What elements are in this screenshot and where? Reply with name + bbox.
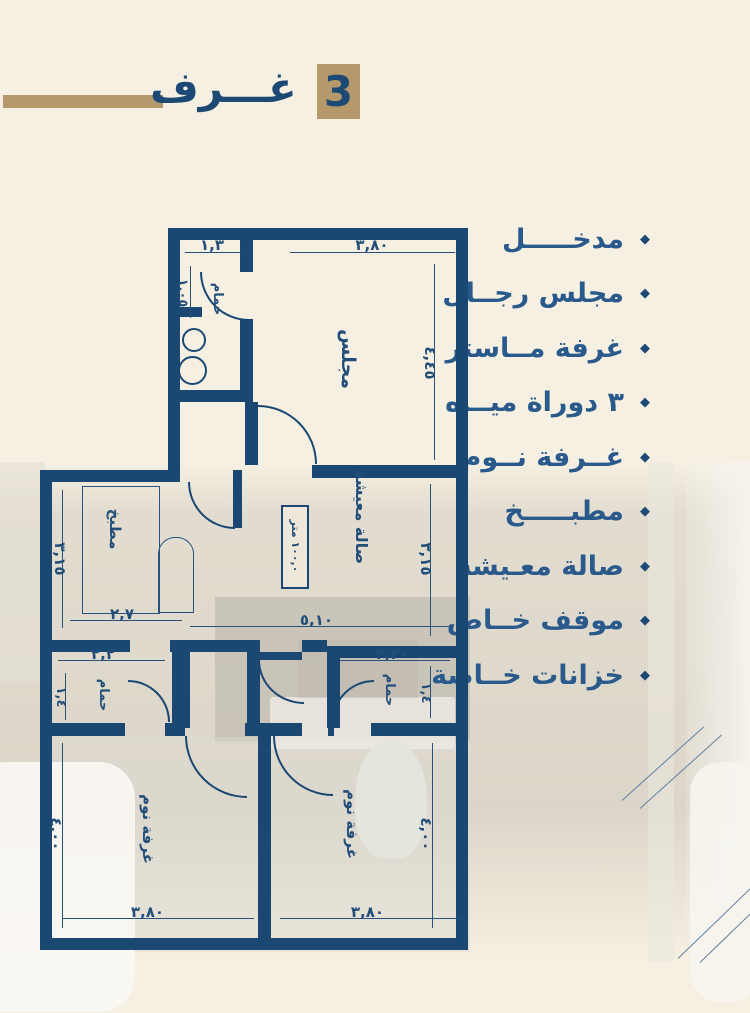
header-underline-bar: [3, 95, 163, 108]
dimension-label: ١,٠٥: [172, 266, 190, 320]
kitchen-arch: [158, 537, 194, 613]
photo-curtain-fold: [648, 462, 674, 962]
room-label-kitchen: مطبخ: [106, 489, 124, 569]
rooms-count-badge: 3: [317, 64, 360, 119]
dimension-label: ٢,٢: [78, 645, 128, 663]
room-label-bath-right: حمام: [379, 665, 397, 715]
wall-segment: [168, 390, 253, 402]
door-leaf: [260, 652, 302, 660]
dimension-label: ٣,١٥: [417, 532, 435, 586]
dimension-label: ٤,٠٠: [417, 807, 435, 861]
feature-label: غــرفة نــوم: [462, 442, 624, 473]
feature-label: مطبـــــخ: [504, 496, 624, 527]
feature-label: صالة معـيشة: [456, 551, 624, 582]
dimension-label: ٤,٤٥: [421, 336, 439, 390]
diagonal-line-decoration: [622, 727, 704, 801]
wall-segment: [40, 938, 468, 950]
dimension-label: ١,٤: [50, 670, 68, 724]
toilet-icon: [178, 356, 207, 385]
sink-icon: [182, 328, 206, 352]
wall-segment: [302, 640, 327, 652]
photo-curtain: [686, 462, 750, 962]
dimension-label: ١,٤: [415, 666, 433, 720]
dimension-label: ٢,٣٠: [367, 645, 417, 663]
wall-segment: [165, 723, 185, 736]
feature-label: موقف خــاص: [447, 605, 624, 636]
diamond-bullet-icon: ◆: [640, 341, 650, 356]
wall-segment: [247, 640, 260, 728]
diagonal-line-decoration: [678, 875, 750, 959]
room-label-bedroom-left: غرفة نوم: [139, 779, 157, 879]
wall-segment: [312, 465, 468, 478]
photo-left-shade: [0, 462, 45, 682]
page-title: غـــرف: [150, 62, 310, 114]
wall-segment: [240, 240, 253, 272]
feature-label: مدخـــــل: [502, 224, 624, 255]
diamond-bullet-icon: ◆: [640, 286, 650, 301]
diamond-bullet-icon: ◆: [640, 232, 650, 247]
diagonal-line-decoration: [700, 879, 750, 963]
dimension-line: [190, 266, 191, 318]
room-label-bedroom-right: غرفة نوم: [343, 774, 361, 874]
feature-label: غرفة مــاستر: [446, 333, 624, 364]
dimension-label: ٣,٨٠: [120, 903, 175, 921]
right-bedroom-door-arc: [273, 736, 333, 796]
floor-plan: ١٠٠,٠ متر ٣,٨٠ ١,٣ ١,٠٥ ٤,٤٥ ٣,١٥ ٢,٧ ٥,…: [40, 228, 470, 950]
entrance-door-arc: [258, 405, 317, 464]
diamond-bullet-icon: ◆: [640, 559, 650, 574]
room-label-majlis: مجلس: [341, 319, 359, 399]
diamond-bullet-icon: ◆: [640, 668, 650, 683]
corridor-door-arc: [258, 660, 304, 704]
photo-sofa-right: [690, 762, 750, 1002]
diamond-bullet-icon: ◆: [640, 504, 650, 519]
wall-segment: [456, 228, 468, 950]
wall-segment: [371, 723, 468, 736]
kitchen-door-arc: [188, 482, 235, 529]
dimension-label: ٤,٠٠: [47, 807, 65, 861]
flyer-page: { "page": { "bg": "#f6f0e2", "accent_tan…: [0, 0, 750, 1013]
room-label-bath-top: حمام: [207, 274, 225, 324]
wall-segment: [40, 723, 125, 736]
wall-segment: [245, 402, 258, 465]
wall-segment: [245, 723, 302, 736]
diamond-bullet-icon: ◆: [640, 395, 650, 410]
dimension-label: ٢,٧: [97, 605, 147, 623]
diamond-bullet-icon: ◆: [640, 450, 650, 465]
dimension-label: ٥,١٠: [289, 611, 344, 629]
wall-segment: [258, 723, 271, 950]
room-label-bath-left: حمام: [93, 670, 111, 720]
room-label-living: صالة معيشة: [353, 467, 371, 567]
dimension-label: ٣,٨٠: [342, 236, 402, 254]
dimension-label: ١,٣: [187, 236, 237, 254]
area-label: ١٠٠,٠ متر: [284, 496, 302, 596]
wall-segment: [40, 470, 180, 482]
wall-segment: [172, 640, 190, 728]
left-bath-door-arc: [128, 680, 170, 722]
diamond-bullet-icon: ◆: [640, 613, 650, 628]
dimension-label: ٣,١٥: [51, 532, 69, 586]
dimension-label: ٣,٨٠: [340, 903, 395, 921]
wall-segment: [328, 723, 334, 736]
feature-label: ٣ دوراة ميــاه: [445, 387, 624, 418]
left-bedroom-door-arc: [185, 736, 247, 798]
